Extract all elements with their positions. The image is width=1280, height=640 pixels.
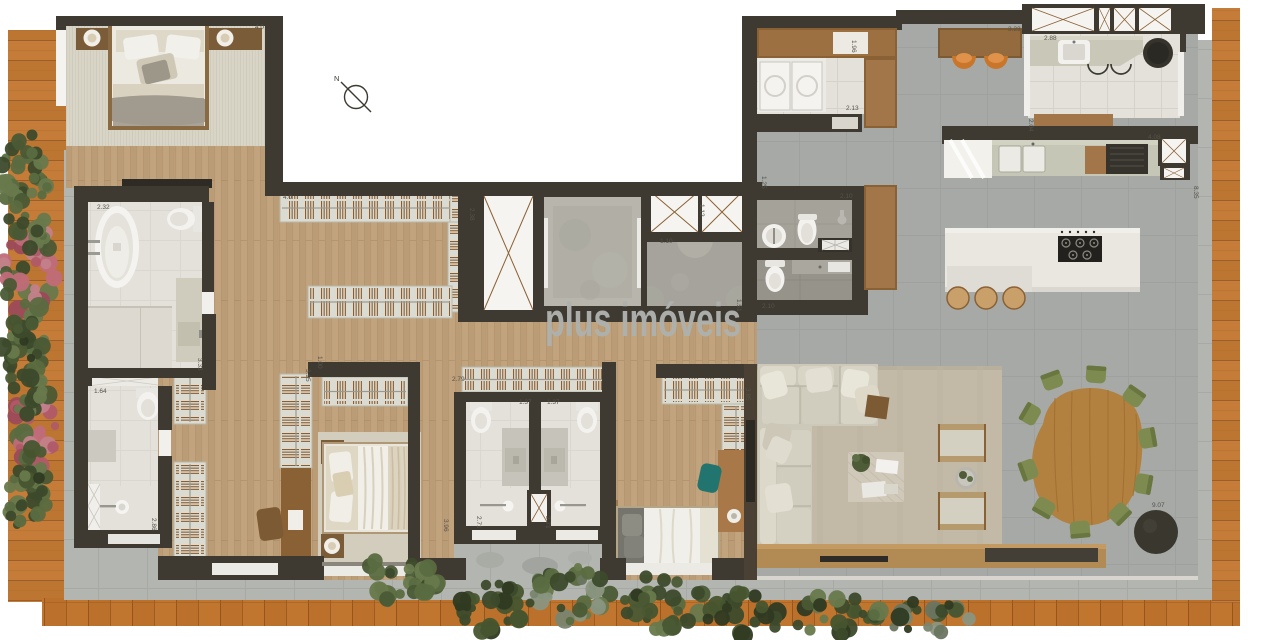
svg-text:2.38: 2.38 xyxy=(468,208,475,221)
svg-text:3.85: 3.85 xyxy=(744,388,751,401)
svg-text:3.33: 3.33 xyxy=(196,358,203,371)
svg-text:2.79: 2.79 xyxy=(452,376,465,383)
svg-text:2.10: 2.10 xyxy=(840,193,853,200)
svg-text:2.10: 2.10 xyxy=(762,303,775,310)
svg-text:1.00: 1.00 xyxy=(316,356,323,369)
svg-text:1.12: 1.12 xyxy=(698,204,705,217)
svg-text:2.71: 2.71 xyxy=(544,516,551,529)
svg-text:2.13: 2.13 xyxy=(846,105,859,112)
svg-text:9.07: 9.07 xyxy=(1152,502,1165,509)
svg-text:1.96: 1.96 xyxy=(850,40,857,53)
svg-text:2.32: 2.32 xyxy=(97,204,110,211)
svg-text:1.37: 1.37 xyxy=(547,399,560,406)
svg-text:3.96: 3.96 xyxy=(442,519,449,532)
svg-text:8.35: 8.35 xyxy=(1192,186,1199,199)
svg-text:N: N xyxy=(334,74,339,83)
svg-text:4.08: 4.08 xyxy=(1148,134,1161,141)
svg-text:1.64: 1.64 xyxy=(94,388,107,395)
svg-text:1.10: 1.10 xyxy=(660,238,673,245)
svg-text:2.71: 2.71 xyxy=(475,516,482,529)
svg-text:plus imóveis: plus imóveis xyxy=(545,293,741,346)
svg-text:2.04: 2.04 xyxy=(1027,119,1034,132)
svg-text:1.25: 1.25 xyxy=(760,176,767,189)
svg-text:4.0: 4.0 xyxy=(255,24,264,31)
svg-text:3.95: 3.95 xyxy=(304,369,311,382)
svg-text:2.88: 2.88 xyxy=(1044,35,1057,42)
svg-text:1.37: 1.37 xyxy=(519,399,532,406)
svg-text:4.0: 4.0 xyxy=(283,194,292,201)
svg-text:2.86: 2.86 xyxy=(150,518,157,531)
svg-text:3.23: 3.23 xyxy=(1008,26,1021,33)
